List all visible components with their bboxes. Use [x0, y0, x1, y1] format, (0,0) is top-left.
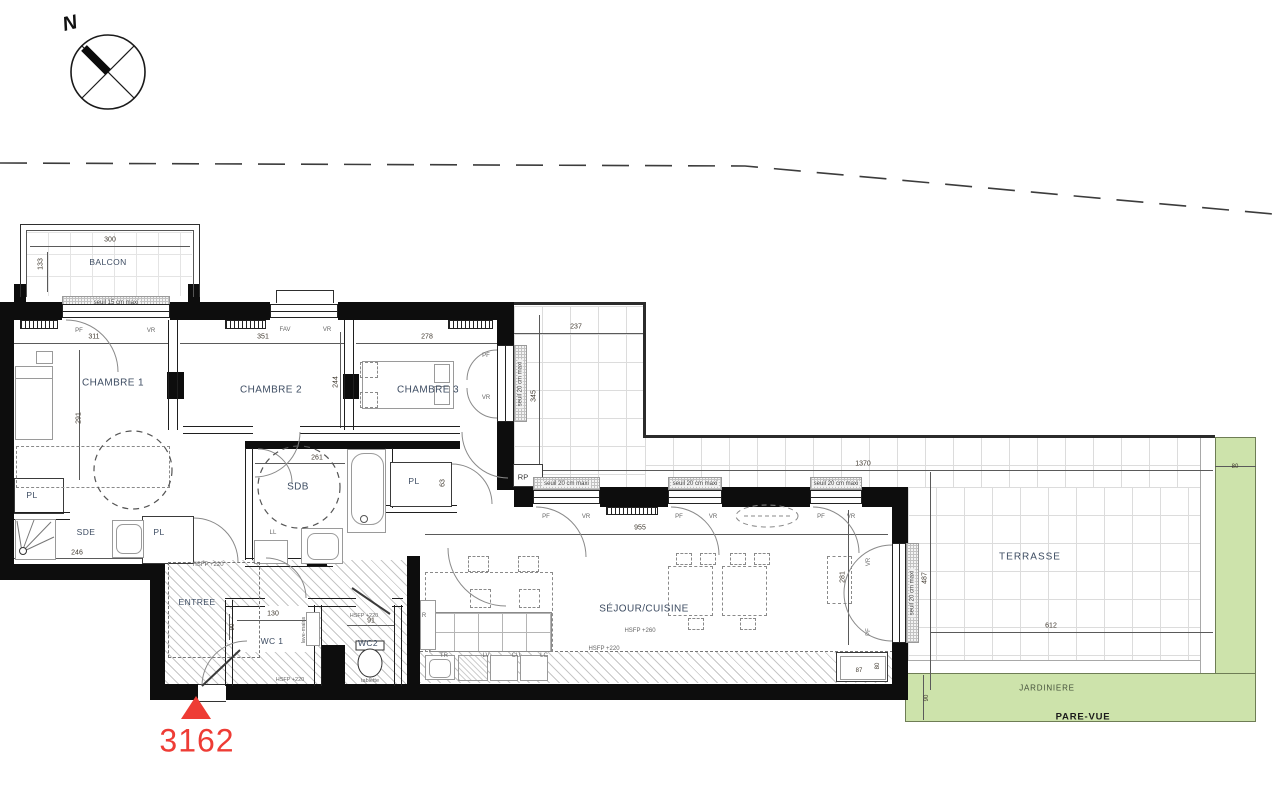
dim-line	[356, 343, 497, 344]
sill-note: seuil 20 cm maxi	[812, 481, 861, 487]
window-chambre2	[270, 304, 338, 318]
dim-sdb-width: 261	[311, 455, 323, 462]
opening-pf: PF	[482, 353, 490, 359]
equipment-r: R	[422, 613, 426, 619]
wall-segment	[0, 302, 14, 564]
opening-vr: VR	[709, 514, 717, 520]
fridge	[420, 600, 436, 650]
wall-segment	[0, 564, 150, 580]
dim-line	[255, 463, 345, 464]
chair	[700, 553, 716, 565]
partition	[344, 320, 354, 430]
dim-line	[930, 632, 1213, 633]
dim-line	[180, 343, 344, 344]
opening-vr: VR	[582, 514, 590, 520]
equipment-lave-mains: lave-mains	[301, 617, 307, 644]
terrace-rail-long	[643, 435, 1215, 438]
kitchen-counter-grid	[429, 612, 552, 652]
dim-line	[14, 343, 168, 344]
wall-segment	[514, 487, 533, 507]
stool	[518, 556, 539, 572]
room-label-wc1: WC 1	[261, 636, 284, 646]
wall-segment	[892, 487, 908, 543]
washbasin-sde-bowl	[116, 524, 142, 554]
sejour-sill-2: seuil 20 cm maxi	[668, 477, 722, 490]
room-label-chambre1: CHAMBRE 1	[82, 378, 144, 389]
room-label-sde: SDE	[77, 527, 96, 537]
opening-vr: VR	[323, 327, 331, 333]
dim-pl-depth: 63	[440, 479, 447, 487]
opening-vr: VR	[866, 558, 872, 566]
chair	[754, 553, 770, 565]
window-chambre3	[497, 345, 514, 422]
room-label-rp: RP	[518, 473, 528, 482]
terrace-rail-side	[643, 302, 646, 437]
room-label-balcon: BALCON	[89, 257, 126, 267]
room-label-pl3: PL	[408, 476, 419, 486]
entrance-threshold	[198, 684, 226, 702]
kitchen-sink-bowl	[429, 659, 451, 678]
dim-wc1-width: 130	[267, 611, 279, 618]
opening-pf: PF	[817, 514, 825, 520]
wall-segment	[892, 643, 908, 700]
dim-line	[500, 470, 1213, 471]
dim-sejour-width: 955	[634, 525, 646, 532]
dim-line	[930, 472, 931, 690]
terrace-margin-bottom	[908, 660, 1215, 674]
wall-segment	[600, 487, 668, 507]
note-hsfp260-sejour: HSFP +260	[624, 628, 655, 634]
dim-line	[514, 333, 643, 334]
window-sejour-2	[668, 490, 722, 504]
dim-jardiniere-width: 80	[1232, 464, 1239, 470]
dressing-chambre1	[16, 446, 170, 488]
stool	[468, 556, 489, 572]
dim-chambre2-depth: 244	[333, 376, 340, 388]
room-label-chambre2: CHAMBRE 2	[240, 385, 302, 396]
dim-terrace-depth: 487	[922, 572, 929, 584]
dim-corner-depth: 80	[875, 663, 881, 670]
window-chambre1	[62, 304, 170, 318]
room-label-wc2: WC2	[358, 638, 378, 648]
dim-terrace-width: 1370	[855, 461, 871, 468]
wall-segment	[226, 684, 908, 700]
sill-note: seuil 20 cm maxi	[518, 359, 524, 408]
dim-balcon-width: 300	[104, 237, 116, 244]
dim-sejour-depth: 281	[840, 571, 847, 583]
opening-pf: PF	[75, 328, 83, 334]
partition	[168, 320, 178, 430]
bed-chambre1-pillow-line	[15, 378, 53, 379]
terrace-tiles-main	[908, 487, 1213, 660]
lave-mains-fixture	[306, 612, 320, 646]
wall-segment	[170, 302, 270, 320]
room-label-sejour: SÉJOUR/CUISINE	[599, 604, 689, 615]
wall-segment	[722, 487, 810, 507]
bathtub-inner	[351, 453, 384, 525]
wall-segment	[150, 684, 198, 700]
room-label-pl1: PL	[26, 490, 37, 500]
pillow	[434, 364, 450, 383]
closet-pl2	[142, 516, 194, 564]
property-boundary-dashed-line	[0, 163, 1273, 214]
wall-segment	[407, 556, 420, 692]
radiator	[20, 320, 58, 329]
wall-segment	[497, 302, 514, 346]
equipment-tablette: tablette	[361, 678, 379, 684]
washbasin-sdb-bowl	[307, 533, 339, 560]
dim-wc1-depth: 90	[230, 624, 236, 631]
dim-chambre1-width: 311	[88, 334, 99, 341]
opening-vr: VR	[147, 328, 155, 334]
dim-line	[340, 332, 341, 428]
room-label-entree: ENTREE	[179, 597, 216, 607]
lot-number: 3162	[159, 723, 234, 760]
opening-pf: PF	[675, 514, 683, 520]
dim-chambre3-width: 278	[421, 334, 433, 341]
partition	[394, 605, 402, 686]
sill-note: seuil 20 cm maxi	[910, 569, 916, 618]
note-hsfp220-sejour: HSFP +220	[588, 646, 619, 652]
room-label-jardiniere: JARDINIERE	[1019, 684, 1075, 693]
room-label-terrasse: TERRASSE	[999, 552, 1061, 563]
opening-vr: VR	[847, 514, 855, 520]
partition	[300, 426, 460, 434]
radiator	[448, 320, 493, 329]
stool	[519, 589, 540, 608]
juliet-rail	[276, 290, 334, 303]
equipment-tr: TR	[440, 653, 448, 659]
note-hsfp220-wc1: HSFP +220	[276, 677, 305, 683]
shower	[15, 519, 56, 560]
nightstand-dashed	[360, 392, 378, 408]
opening-pf: PF	[542, 514, 550, 520]
nightstand-dashed	[360, 362, 378, 378]
window-sejour-3	[810, 490, 862, 504]
stool	[470, 589, 491, 608]
opening-fav: FAV	[280, 327, 291, 333]
room-label-sdb: SDB	[287, 482, 309, 493]
sejour-sill-1: seuil 20 cm maxi	[533, 477, 600, 490]
equipment-lv: LV	[483, 653, 490, 659]
decor-ellipse	[736, 505, 798, 527]
chair	[740, 618, 756, 630]
washing-machine	[254, 540, 288, 564]
terrace-margin-right	[1200, 437, 1216, 673]
room-label-pl2: PL	[153, 527, 164, 537]
wall-segment	[338, 302, 497, 320]
dim-terrace-low-width: 612	[1045, 623, 1057, 630]
room-label-chambre3: CHAMBRE 3	[397, 385, 459, 396]
floor-plan: seuil 15 cm maxi seuil 20 cm maxi seuil …	[0, 0, 1273, 800]
equipment-ll: LL	[270, 530, 277, 536]
dim-wc2-width: 91	[367, 618, 375, 625]
sejour-east-sill: seuil 20 cm maxi	[906, 543, 919, 643]
equipment-cu: CU	[512, 653, 521, 659]
north-compass-icon	[71, 35, 145, 109]
radiator	[225, 320, 266, 329]
chair	[730, 553, 746, 565]
wall-segment	[150, 564, 165, 700]
dim-sde-width: 246	[71, 550, 83, 557]
chambre3-sill: seuil 20 cm maxi	[514, 345, 527, 422]
chair	[688, 618, 704, 630]
dim-balcon-depth: 133	[38, 258, 45, 270]
partition	[245, 448, 253, 560]
radiator	[606, 507, 658, 515]
dining-table	[722, 566, 767, 616]
sill-note: seuil 20 cm maxi	[542, 481, 591, 487]
dim-terrace-top-width: 237	[570, 324, 582, 331]
terrace-tiles-band	[645, 437, 1213, 487]
dim-chambre1-depth: 291	[76, 412, 83, 424]
opening-pf: PF	[866, 628, 872, 636]
dim-line	[347, 625, 395, 626]
window-sejour-east	[892, 543, 906, 643]
wall-segment	[245, 441, 460, 449]
terrace-rail-top	[514, 302, 645, 305]
chair	[676, 553, 692, 565]
sill-note: seuil 20 cm maxi	[671, 481, 720, 487]
nightstand	[36, 351, 53, 364]
partition	[183, 426, 253, 434]
entree-soffit-zone	[168, 562, 260, 658]
dim-terrace-top-depth: 345	[531, 390, 538, 402]
sejour-sill-3: seuil 20 cm maxi	[810, 477, 862, 490]
dim-corner-width: 87	[856, 668, 863, 674]
dim-jardiniere-depth: 90	[924, 695, 930, 702]
label-pare-vue: PARE-VUE	[1056, 712, 1111, 723]
wall-segment	[497, 420, 514, 490]
equipment-lc: LC	[540, 653, 548, 659]
note-hsfp220-entree: HSFP +220	[192, 562, 223, 568]
opening-vr: VR	[482, 395, 490, 401]
dim-line	[539, 315, 540, 480]
dim-line	[425, 534, 888, 535]
north-label: N	[60, 11, 80, 37]
wall-pier	[322, 645, 345, 685]
window-sejour-1	[533, 490, 600, 504]
dim-chambre2-width: 351	[257, 334, 269, 341]
